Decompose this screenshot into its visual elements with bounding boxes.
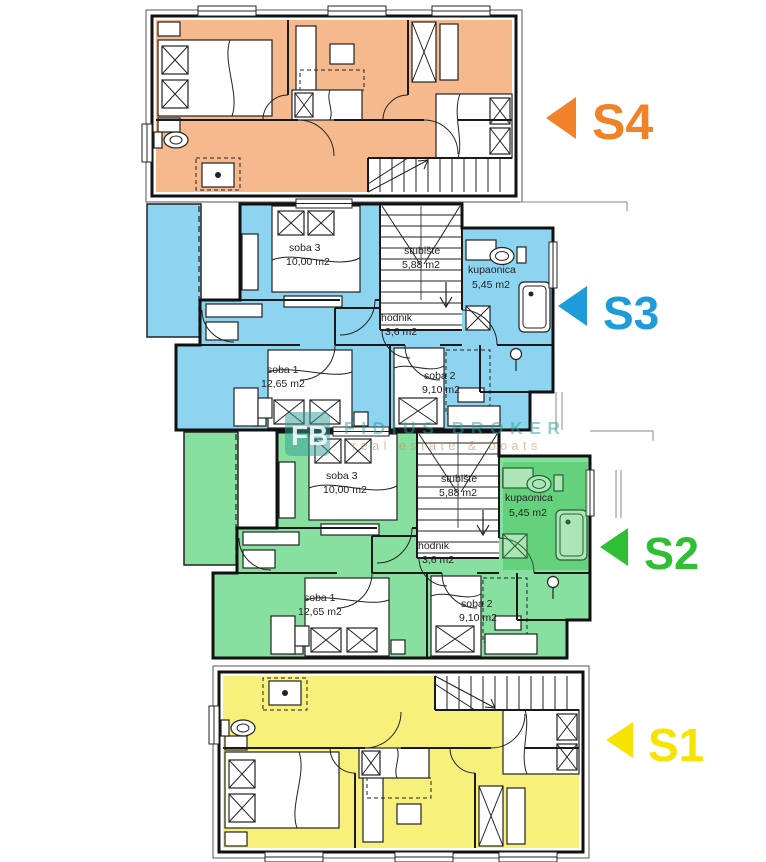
room-name-label: kupaonica — [505, 492, 553, 504]
room-name-label: soba 1 — [267, 364, 299, 376]
marker-s2: S2 — [600, 528, 699, 579]
room-area-label: 10,00 m2 — [323, 484, 367, 496]
room-name-label: soba 3 — [326, 470, 358, 482]
watermark-tagline: real estate & boats — [352, 439, 542, 453]
watermark: FB FIDIUS BROKER real estate & boats — [285, 412, 567, 456]
room-area-label: 5,88 m2 — [402, 259, 440, 271]
room-name-label: stubište — [441, 473, 477, 485]
room-area-label: 12,65 m2 — [298, 606, 342, 618]
unit-label-s4: S4 — [592, 94, 653, 150]
apartment-s4-plan — [142, 6, 522, 202]
room-name-label: hodnik — [418, 540, 450, 552]
room-name-label: soba 3 — [289, 242, 321, 254]
marker-s4: S4 — [546, 94, 653, 150]
unit-arrow-icon — [606, 722, 633, 758]
room-area-label: 9,10 m2 — [422, 384, 460, 396]
room-area-label: 10,00 m2 — [286, 256, 330, 268]
unit-label-s3: S3 — [603, 287, 659, 339]
floor-plan-image: soba 3 10,00 m2 stubište 5,88 m2 kupaoni… — [0, 0, 766, 862]
unit-label-s2: S2 — [644, 528, 699, 579]
floor-plan-page: soba 3 10,00 m2 stubište 5,88 m2 kupaoni… — [0, 0, 766, 862]
unit-arrow-icon — [546, 97, 576, 139]
room-name-label: stubište — [404, 245, 440, 257]
unit-arrow-icon — [600, 528, 628, 566]
room-area-label: 5,45 m2 — [509, 507, 547, 519]
room-name-label: kupaonica — [468, 264, 516, 276]
watermark-title: FIDIUS BROKER — [344, 418, 567, 438]
room-area-label: 12,65 m2 — [261, 378, 305, 390]
room-area-label: 3,6 m2 — [385, 326, 417, 338]
room-name-label: hodnik — [381, 312, 413, 324]
apartment-s1-plan — [209, 666, 589, 862]
room-name-label: soba 1 — [304, 592, 336, 604]
unit-label-s1: S1 — [648, 719, 704, 771]
apartment-s2-plan — [184, 427, 594, 658]
marker-s1: S1 — [606, 719, 704, 771]
unit-arrow-icon — [558, 286, 587, 326]
room-area-label: 5,45 m2 — [472, 279, 510, 291]
room-area-label: 3,6 m2 — [422, 554, 454, 566]
apartment-s3-plan — [147, 199, 557, 430]
room-area-label: 5,88 m2 — [439, 487, 477, 499]
watermark-logo-text: FB — [291, 420, 328, 451]
room-name-label: soba 2 — [461, 598, 493, 610]
marker-s3: S3 — [558, 286, 659, 339]
room-area-label: 9,10 m2 — [459, 612, 497, 624]
room-name-label: soba 2 — [424, 370, 456, 382]
